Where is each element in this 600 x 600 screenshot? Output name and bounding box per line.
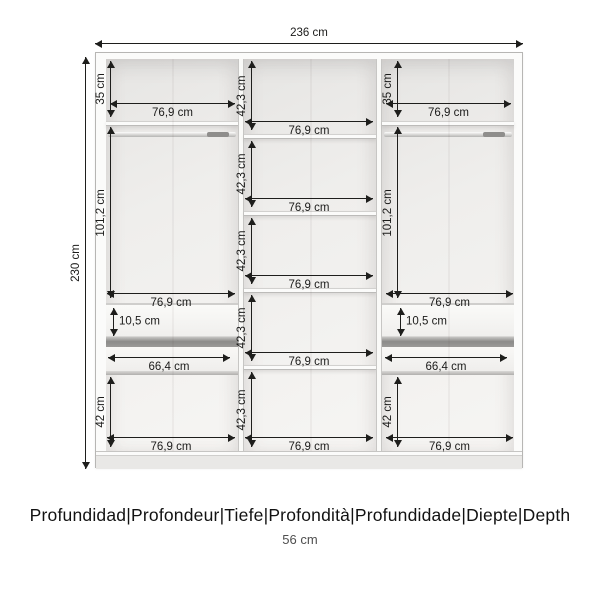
dim-label: 76,9 cm	[289, 126, 330, 138]
dim-label: 76,9 cm	[429, 298, 470, 310]
dim-label: 66,4 cm	[149, 362, 190, 374]
right-hanging-rod	[384, 132, 512, 137]
dim-left-drawer-width: 66,4 cm	[108, 357, 230, 358]
dim-label: 76,9 cm	[289, 280, 330, 292]
depth-label: Profundidad|Profondeur|Tiefe|Profondità|…	[0, 505, 600, 526]
drawer-handle-gap	[106, 337, 238, 347]
dim-label: 42,3 cm	[237, 154, 249, 195]
dim-label: 101,2 cm	[383, 189, 395, 236]
dim-left-bottom-width: 76,9 cm	[107, 437, 235, 438]
dim-label: 76,9 cm	[152, 108, 193, 120]
dim-middle-row1-width: 76,9 cm	[245, 121, 373, 122]
dim-left-drawer-height: 10,5 cm	[113, 308, 114, 336]
plinth	[96, 455, 522, 469]
depth-value: 56 cm	[0, 532, 600, 547]
dim-left-top-width: 76,9 cm	[110, 103, 235, 104]
dim-label: 76,9 cm	[429, 442, 470, 454]
dim-label: 10,5 cm	[119, 316, 160, 328]
left-top-shelf	[106, 121, 238, 126]
dim-label: 76,9 cm	[151, 298, 192, 310]
dim-label: 76,9 cm	[289, 357, 330, 369]
dim-right-drawer-height: 10,5 cm	[400, 308, 401, 336]
dim-middle-row4-width: 76,9 cm	[245, 352, 373, 353]
dim-label: 66,4 cm	[426, 362, 467, 374]
drawer-handle-gap	[382, 337, 514, 347]
dim-middle-row5-width: 76,9 cm	[245, 437, 373, 438]
dim-label: 76,9 cm	[428, 108, 469, 120]
wardrobe-dimension-diagram: 236 cm 230 cm 35 cm 76,9 cm 101,2 cm 76,…	[0, 0, 600, 600]
dim-middle-row3-width: 76,9 cm	[245, 275, 373, 276]
dim-overall-width: 236 cm	[95, 43, 523, 44]
dim-label: 42 cm	[96, 396, 108, 427]
dim-label: 42,3 cm	[237, 75, 249, 116]
dim-right-mid-width: 76,9 cm	[386, 293, 513, 294]
dim-label: 101,2 cm	[96, 189, 108, 236]
dim-right-top-height: 35 cm	[397, 61, 398, 117]
dim-overall-width-label: 236 cm	[290, 28, 328, 40]
dim-label: 42 cm	[383, 396, 395, 427]
dim-overall-height-label: 230 cm	[71, 244, 83, 282]
dim-right-top-width: 76,9 cm	[386, 103, 511, 104]
dim-middle-row2-width: 76,9 cm	[245, 198, 373, 199]
right-top-shelf	[382, 121, 514, 126]
dim-right-bottom-width: 76,9 cm	[386, 437, 513, 438]
dim-label: 42,3 cm	[237, 308, 249, 349]
dim-left-mid-width: 76,9 cm	[107, 293, 235, 294]
dim-label: 10,5 cm	[406, 316, 447, 328]
dim-label: 42,3 cm	[237, 231, 249, 272]
dim-left-hanging-height: 101,2 cm	[110, 127, 111, 298]
dim-right-hanging-height: 101,2 cm	[397, 127, 398, 298]
dim-label: 76,9 cm	[289, 442, 330, 454]
dim-left-top-height: 35 cm	[110, 61, 111, 117]
left-hanging-rod	[108, 132, 236, 137]
dim-label: 76,9 cm	[289, 203, 330, 215]
dim-overall-height: 230 cm	[85, 57, 86, 469]
dim-label: 42,3 cm	[237, 389, 249, 430]
dim-right-drawer-width: 66,4 cm	[385, 357, 507, 358]
dim-label: 35 cm	[96, 73, 108, 104]
middle-column	[244, 59, 376, 451]
dim-label: 76,9 cm	[151, 442, 192, 454]
